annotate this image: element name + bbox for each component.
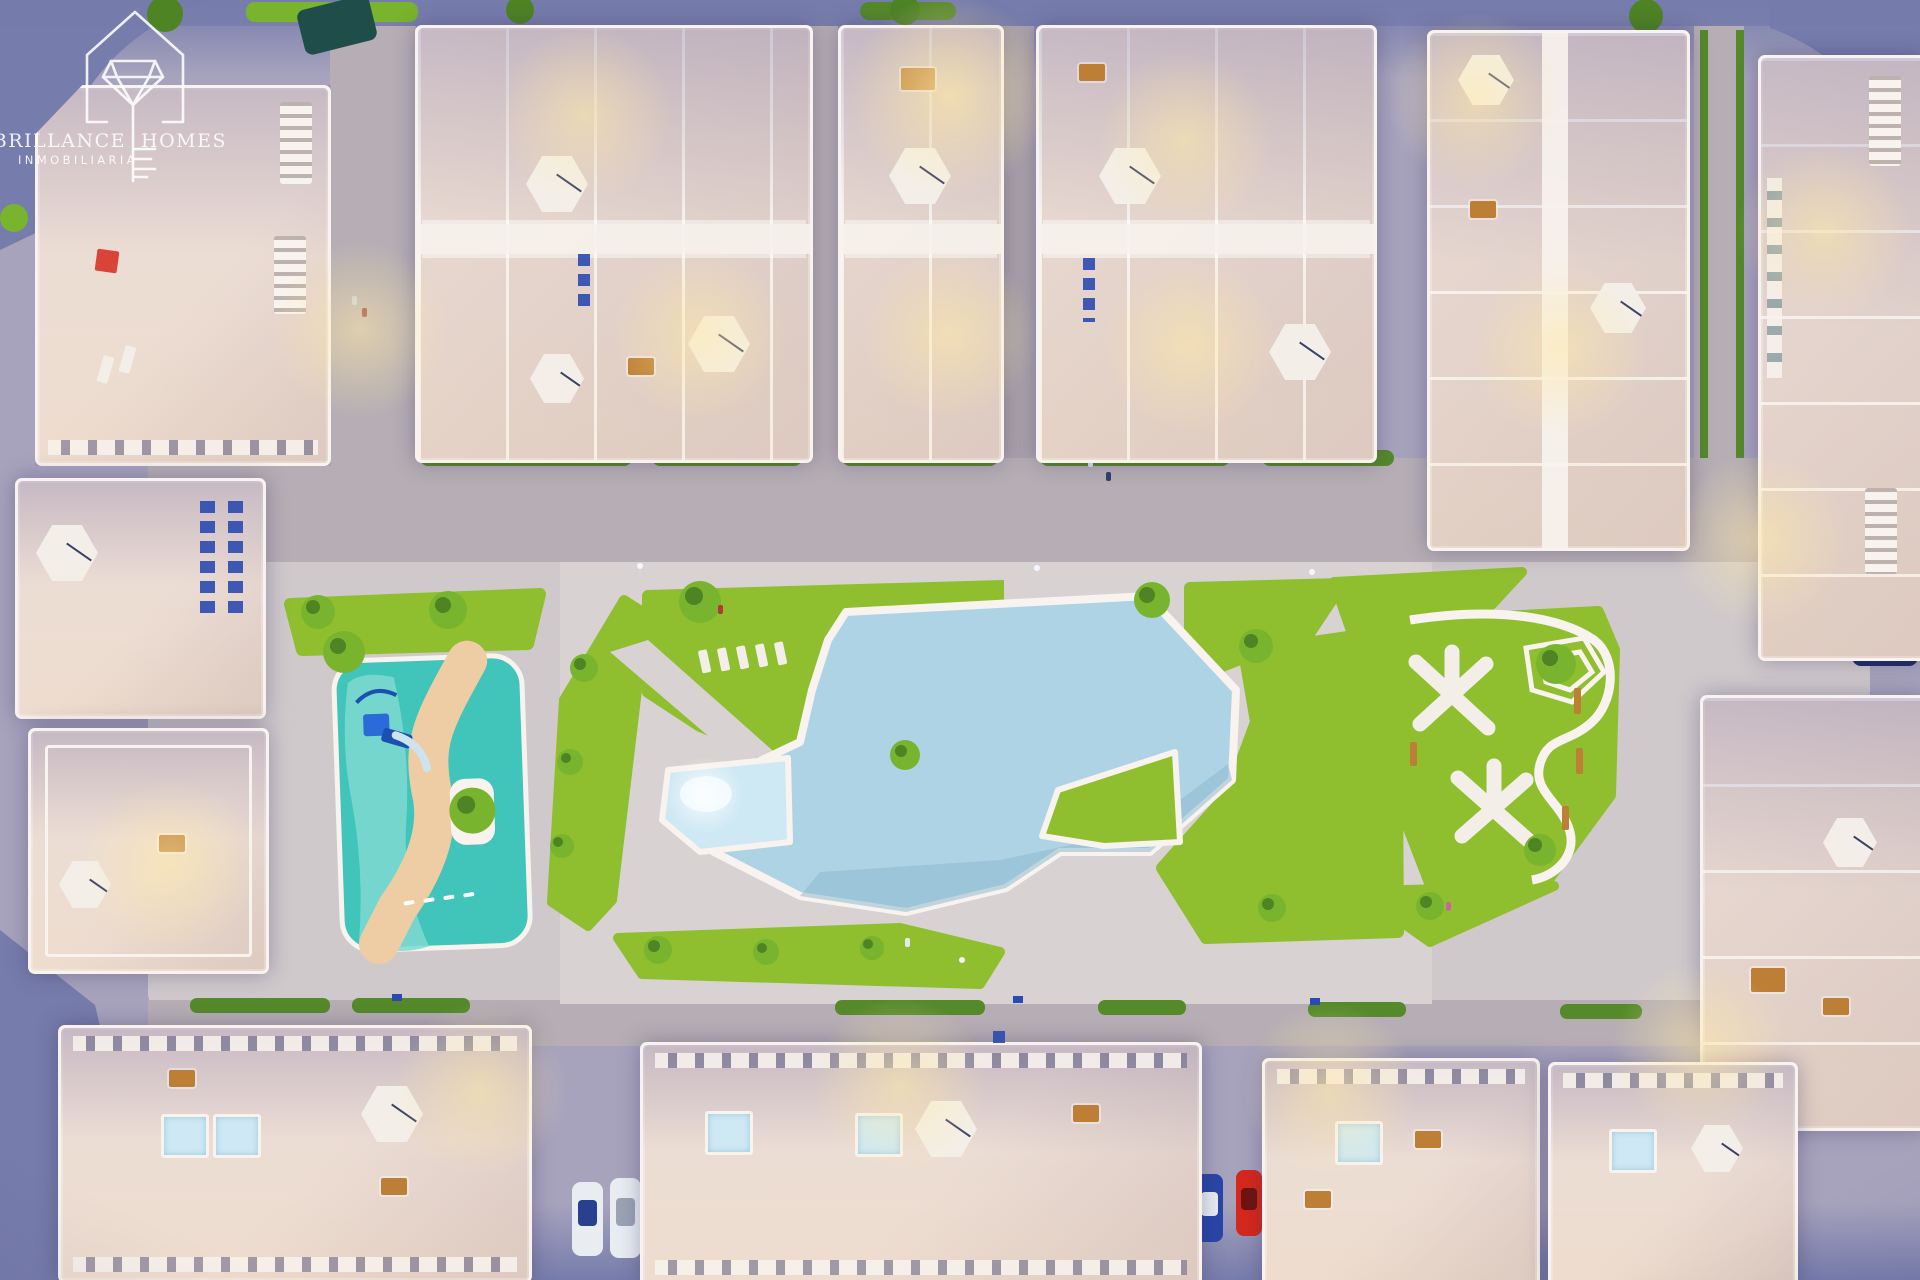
facade-windows (48, 440, 318, 455)
row-spine (1039, 224, 1374, 254)
alley-top-left (330, 26, 416, 466)
tree (753, 939, 779, 965)
tree (679, 581, 721, 623)
stair-tower (280, 102, 312, 184)
facade-windows (73, 1257, 517, 1272)
rooftop-umbrella (688, 316, 750, 372)
plunge-pool (161, 1114, 209, 1158)
tree (1239, 629, 1273, 663)
car-red (1236, 1170, 1262, 1236)
terrace-parapet (45, 745, 252, 957)
building-bottom-middle (640, 1042, 1202, 1280)
rooftop-umbrella (361, 1086, 423, 1142)
tree (644, 936, 672, 964)
stair-tower (1869, 76, 1901, 166)
rooftop-umbrella (1823, 818, 1877, 867)
tree (301, 595, 335, 629)
picnic-blanket (95, 249, 120, 274)
facade-windows (1563, 1073, 1783, 1088)
building-bottom-right (1262, 1058, 1540, 1280)
tree (860, 936, 884, 960)
lawn-strip-south (618, 928, 1000, 984)
rooftop-lounger (118, 345, 136, 374)
tree (1536, 644, 1576, 684)
building-left-middle (15, 478, 266, 719)
terrace-table (1073, 1105, 1099, 1122)
window-slots (200, 501, 215, 621)
walkway-planting-right (1736, 30, 1744, 470)
tree (550, 834, 574, 858)
window-slots (1083, 258, 1095, 322)
tree (1258, 894, 1286, 922)
row-spine (418, 224, 810, 254)
window-slots (578, 254, 590, 314)
terrace-table (1470, 201, 1496, 218)
rooftop-umbrella (1269, 324, 1331, 380)
wading-pool-light (680, 776, 732, 812)
building-right-edge (1758, 55, 1920, 661)
terrace-table (628, 358, 654, 375)
terrace-table (1415, 1131, 1441, 1148)
facade-windows (655, 1053, 1187, 1068)
rooftop-umbrella (1691, 1125, 1743, 1172)
terrace-table (1079, 64, 1105, 81)
facade-windows (1767, 178, 1782, 378)
building-bottom-left (58, 1025, 532, 1280)
tree (1134, 582, 1170, 618)
plunge-pool (213, 1114, 261, 1158)
stair-tower (1865, 488, 1897, 574)
terrace-table (901, 68, 935, 90)
tree (429, 591, 467, 629)
terrace-table (381, 1178, 407, 1195)
building-bottom-far-right (1548, 1062, 1798, 1280)
rooftop-umbrella (526, 156, 588, 212)
tree (557, 749, 583, 775)
car-white (610, 1178, 641, 1258)
facade-windows (655, 1260, 1187, 1275)
rooftop-umbrella (1458, 55, 1514, 105)
tree (890, 740, 920, 770)
rooftop-umbrella (889, 148, 951, 204)
plunge-pool (705, 1111, 753, 1155)
rooftop-lounger (96, 355, 114, 384)
splash-playground (333, 655, 531, 953)
plunge-pool (1335, 1121, 1383, 1165)
tree (570, 654, 598, 682)
townhouse-row-top-2b (1036, 25, 1377, 463)
rooftop-umbrella (1099, 148, 1161, 204)
tree (1416, 892, 1444, 920)
tree (323, 631, 365, 673)
terrace-table (1305, 1191, 1331, 1208)
terrace-table (1751, 968, 1785, 992)
aerial-render-residential-complex: BRILLANCE HOMES INMOBILIARIA (0, 0, 1920, 1280)
window-slots (228, 501, 243, 621)
tree (147, 0, 183, 32)
rooftop-umbrella (36, 525, 98, 581)
car-white (572, 1182, 603, 1256)
window-slots (993, 1031, 1005, 1045)
townhouse-row-top-2a (838, 25, 1004, 463)
plunge-pool (855, 1113, 903, 1157)
terrace-table (159, 835, 185, 852)
building-top-left (35, 85, 331, 466)
townhouse-column-right (1427, 30, 1690, 551)
terrace-table (1823, 998, 1849, 1015)
rooftop-umbrella (915, 1101, 977, 1157)
walkway-planting-left (1700, 30, 1708, 470)
tree (0, 204, 28, 232)
stair-tower (274, 236, 306, 314)
building-left-lower (28, 728, 269, 974)
facade-windows (1277, 1069, 1525, 1084)
tree (1524, 834, 1556, 866)
tree (1629, 0, 1663, 33)
facade-windows (73, 1036, 517, 1051)
terrace-table (169, 1070, 195, 1087)
column-spine (1542, 33, 1568, 548)
row-spine (841, 224, 1001, 254)
plunge-pool (1609, 1129, 1657, 1173)
rooftop-umbrella (530, 354, 584, 403)
townhouse-row-top-1 (415, 25, 813, 463)
rooftop-umbrella (1590, 283, 1646, 333)
